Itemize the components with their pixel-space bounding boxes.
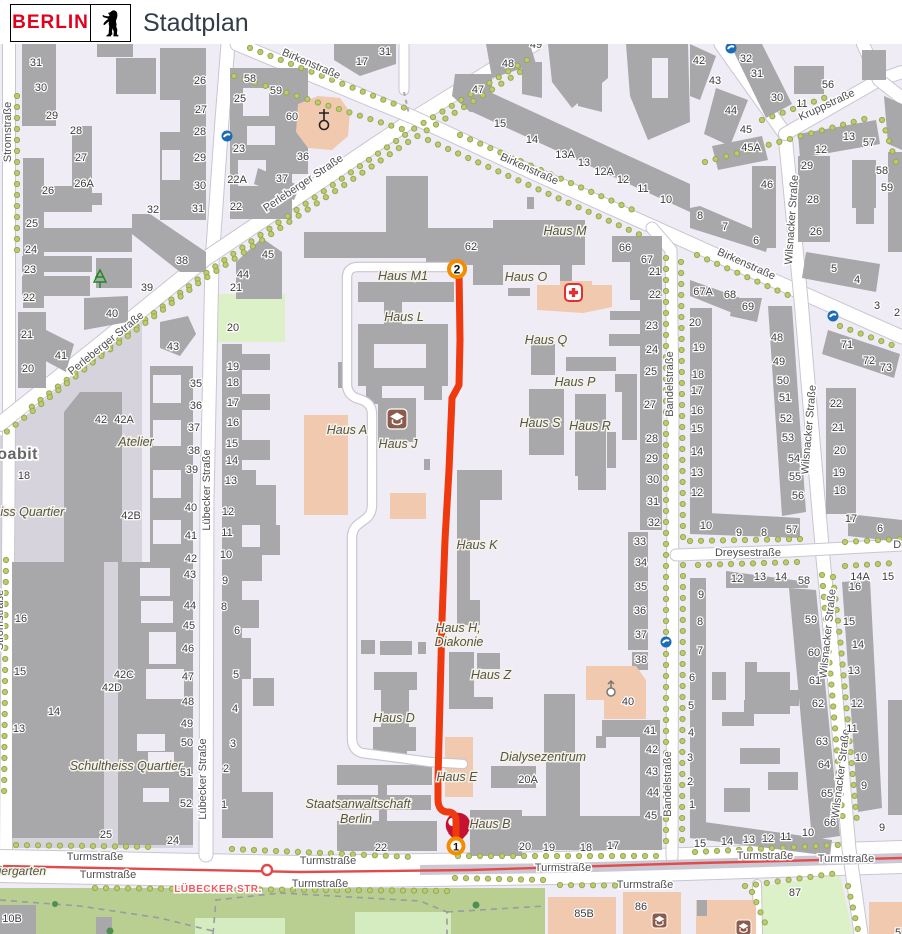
svg-text:60: 60 (286, 111, 298, 123)
svg-text:3: 3 (230, 738, 236, 750)
svg-text:5: 5 (831, 263, 837, 275)
svg-text:31: 31 (30, 57, 42, 69)
svg-text:51: 51 (180, 767, 192, 779)
svg-text:13: 13 (848, 665, 860, 677)
svg-text:Haus R: Haus R (569, 419, 611, 433)
svg-text:Turmstraße: Turmstraße (300, 855, 356, 867)
svg-text:25: 25 (645, 366, 657, 378)
svg-text:17: 17 (356, 56, 368, 68)
svg-text:13: 13 (754, 571, 766, 583)
svg-text:50: 50 (777, 375, 789, 387)
svg-text:Haus Q: Haus Q (525, 333, 568, 347)
svg-text:57: 57 (863, 137, 875, 149)
svg-text:Haus M: Haus M (543, 224, 587, 238)
svg-text:Turmstraße: Turmstraße (292, 878, 348, 890)
svg-text:29: 29 (801, 160, 813, 172)
svg-text:40: 40 (622, 696, 634, 708)
svg-text:Haus J: Haus J (379, 437, 419, 451)
svg-text:15: 15 (694, 838, 706, 850)
svg-text:Turmstraße: Turmstraße (67, 851, 123, 863)
svg-text:Schultheiss Quartier: Schultheiss Quartier (70, 759, 183, 773)
svg-text:14: 14 (691, 446, 703, 458)
svg-text:28: 28 (807, 194, 819, 206)
svg-text:Turmstraße: Turmstraße (818, 853, 874, 865)
svg-text:Bandelstraße: Bandelstraße (664, 351, 676, 416)
svg-text:4: 4 (688, 727, 694, 739)
svg-text:12: 12 (762, 833, 774, 845)
svg-text:68: 68 (724, 289, 736, 301)
svg-text:Stromstraße: Stromstraße (0, 590, 6, 651)
svg-text:21: 21 (832, 422, 844, 434)
svg-text:44: 44 (725, 105, 737, 117)
svg-text:58: 58 (798, 575, 810, 587)
svg-text:12: 12 (731, 573, 743, 585)
svg-text:24: 24 (646, 344, 658, 356)
svg-text:Haus O: Haus O (505, 270, 548, 284)
svg-text:13: 13 (225, 475, 237, 487)
svg-text:45: 45 (645, 810, 657, 822)
svg-text:Haus D: Haus D (373, 711, 415, 725)
svg-text:22: 22 (830, 398, 842, 410)
svg-text:15: 15 (226, 438, 238, 450)
svg-text:42: 42 (693, 55, 705, 67)
svg-text:39: 39 (186, 464, 198, 476)
svg-text:22: 22 (375, 842, 387, 854)
svg-text:8: 8 (697, 210, 703, 222)
svg-text:32: 32 (147, 204, 159, 216)
svg-text:27: 27 (644, 399, 656, 411)
svg-text:13: 13 (843, 131, 855, 143)
svg-text:71: 71 (841, 339, 853, 351)
svg-text:38: 38 (176, 255, 188, 267)
svg-text:87: 87 (789, 887, 801, 899)
svg-text:24: 24 (167, 835, 179, 847)
svg-text:5: 5 (688, 700, 694, 712)
svg-text:1: 1 (453, 842, 459, 854)
svg-text:45A: 45A (741, 142, 761, 154)
svg-text:59: 59 (270, 85, 282, 97)
svg-text:48: 48 (502, 58, 514, 70)
svg-text:55: 55 (789, 471, 801, 483)
svg-text:Haus E: Haus E (437, 770, 479, 784)
svg-text:10: 10 (660, 194, 672, 206)
svg-text:40: 40 (185, 502, 197, 514)
svg-text:39: 39 (141, 282, 153, 294)
svg-text:12: 12 (851, 698, 863, 710)
svg-text:57: 57 (786, 524, 798, 536)
svg-text:43: 43 (709, 75, 721, 87)
svg-text:24: 24 (25, 244, 37, 256)
svg-text:Haus B: Haus B (470, 817, 511, 831)
svg-text:19: 19 (693, 342, 705, 354)
svg-text:17: 17 (227, 397, 239, 409)
svg-text:63: 63 (816, 736, 828, 748)
svg-text:Haus P: Haus P (555, 375, 597, 389)
svg-text:45: 45 (740, 124, 752, 136)
svg-text:10: 10 (802, 827, 814, 839)
svg-text:12: 12 (222, 506, 234, 518)
svg-text:12: 12 (617, 174, 629, 186)
svg-text:26: 26 (194, 75, 206, 87)
svg-text:37: 37 (188, 422, 200, 434)
svg-text:12: 12 (691, 487, 703, 499)
svg-text:6: 6 (753, 235, 759, 247)
svg-text:35: 35 (190, 378, 202, 390)
svg-text:Turmstraße: Turmstraße (80, 869, 136, 881)
svg-text:Moabit: Moabit (0, 446, 38, 463)
svg-text:4: 4 (232, 703, 238, 715)
svg-text:20: 20 (22, 363, 34, 375)
svg-text:4: 4 (854, 274, 860, 286)
svg-text:1: 1 (689, 799, 695, 811)
svg-text:67: 67 (641, 254, 653, 266)
svg-text:16: 16 (227, 417, 239, 429)
svg-text:13: 13 (578, 157, 590, 169)
svg-text:56: 56 (792, 490, 804, 502)
svg-text:36: 36 (297, 151, 309, 163)
svg-text:26: 26 (810, 226, 822, 238)
svg-text:13: 13 (13, 723, 25, 735)
svg-text:14: 14 (775, 571, 787, 583)
svg-text:21: 21 (230, 282, 242, 294)
svg-text:66: 66 (619, 242, 631, 254)
svg-text:10: 10 (700, 520, 712, 532)
svg-text:Haus K: Haus K (457, 538, 499, 552)
svg-text:11: 11 (780, 831, 791, 843)
svg-text:25: 25 (26, 218, 38, 230)
svg-text:Haus H,: Haus H, (435, 621, 480, 635)
svg-text:48: 48 (771, 332, 783, 344)
svg-text:Stromstraße: Stromstraße (2, 102, 14, 163)
svg-text:47: 47 (472, 84, 484, 96)
svg-text:22: 22 (23, 292, 35, 304)
svg-text:10: 10 (855, 752, 867, 764)
svg-text:41: 41 (185, 530, 197, 542)
svg-text:28: 28 (646, 433, 658, 445)
svg-text:17: 17 (607, 840, 619, 852)
svg-text:13A: 13A (555, 149, 575, 161)
svg-text:Haus L: Haus L (384, 310, 424, 324)
svg-text:38: 38 (188, 445, 200, 457)
svg-text:46: 46 (182, 643, 194, 655)
svg-text:56: 56 (822, 79, 834, 91)
svg-text:Turmstraße: Turmstraße (737, 850, 793, 862)
svg-text:20A: 20A (518, 774, 538, 786)
svg-text:65: 65 (821, 788, 833, 800)
svg-text:Lübecker Straße: Lübecker Straße (201, 449, 213, 530)
svg-text:34: 34 (635, 557, 647, 569)
svg-text:67A: 67A (693, 286, 713, 298)
svg-text:9: 9 (698, 589, 704, 601)
svg-text:50: 50 (181, 737, 193, 749)
svg-text:73: 73 (880, 362, 892, 374)
svg-text:11: 11 (637, 183, 648, 195)
svg-text:42: 42 (185, 553, 197, 565)
svg-text:LÜBECKER STR.: LÜBECKER STR. (174, 882, 262, 895)
svg-text:31: 31 (192, 203, 204, 215)
svg-text:18: 18 (580, 842, 592, 854)
svg-text:15: 15 (843, 616, 855, 628)
svg-text:29: 29 (194, 152, 206, 164)
svg-text:30: 30 (771, 92, 783, 104)
svg-text:22A: 22A (227, 174, 247, 186)
svg-text:49: 49 (773, 356, 785, 368)
svg-text:20: 20 (519, 841, 531, 853)
svg-text:11: 11 (796, 98, 807, 110)
svg-text:61: 61 (809, 675, 821, 687)
svg-text:3: 3 (874, 300, 880, 312)
svg-text:12: 12 (815, 144, 827, 156)
svg-text:42A: 42A (114, 414, 134, 426)
svg-text:Haus A: Haus A (327, 423, 368, 437)
svg-text:48: 48 (182, 696, 194, 708)
svg-text:49: 49 (181, 718, 193, 730)
svg-text:66: 66 (824, 817, 836, 829)
svg-text:36: 36 (634, 605, 646, 617)
svg-text:9: 9 (861, 780, 867, 792)
svg-text:29: 29 (646, 453, 658, 465)
svg-text:20: 20 (227, 322, 239, 334)
svg-text:44: 44 (647, 787, 659, 799)
svg-text:23: 23 (24, 264, 36, 276)
svg-text:2: 2 (223, 763, 229, 775)
svg-text:26A: 26A (74, 178, 94, 190)
svg-text:43: 43 (184, 569, 196, 581)
svg-text:14: 14 (526, 134, 538, 146)
svg-text:Berlin: Berlin (340, 812, 372, 826)
svg-text:43: 43 (646, 766, 658, 778)
svg-text:15: 15 (882, 571, 894, 583)
svg-text:Haus M1: Haus M1 (378, 269, 428, 283)
svg-text:52: 52 (780, 413, 792, 425)
svg-text:42D: 42D (102, 682, 122, 694)
svg-text:7: 7 (722, 221, 728, 233)
svg-text:85B: 85B (574, 908, 594, 920)
svg-text:Dialysezentrum: Dialysezentrum (500, 750, 586, 764)
svg-text:23: 23 (233, 143, 245, 155)
svg-text:1: 1 (221, 799, 227, 811)
svg-text:Atelier: Atelier (117, 435, 154, 449)
svg-text:47: 47 (182, 671, 194, 683)
svg-text:2: 2 (687, 776, 693, 788)
svg-text:41: 41 (55, 350, 67, 362)
svg-text:Haus Z: Haus Z (471, 668, 512, 682)
svg-text:46: 46 (761, 179, 773, 191)
svg-text:41: 41 (644, 725, 656, 737)
svg-text:28: 28 (70, 125, 82, 137)
svg-text:45: 45 (183, 620, 195, 632)
svg-text:45: 45 (262, 249, 274, 261)
svg-text:6: 6 (689, 672, 695, 684)
svg-text:Diakonie: Diakonie (435, 635, 484, 649)
svg-text:10: 10 (220, 549, 232, 561)
svg-text:26: 26 (42, 185, 54, 197)
svg-text:16: 16 (691, 405, 703, 417)
svg-text:38: 38 (635, 654, 647, 666)
svg-text:Haus S: Haus S (520, 416, 562, 430)
svg-text:Dr: Dr (893, 539, 902, 551)
svg-text:32: 32 (740, 53, 752, 65)
svg-text:59: 59 (805, 614, 817, 626)
svg-text:19: 19 (227, 361, 239, 373)
svg-text:25: 25 (234, 93, 246, 105)
svg-text:64: 64 (818, 759, 830, 771)
svg-text:29: 29 (46, 110, 58, 122)
svg-text:11: 11 (846, 723, 857, 735)
svg-text:27: 27 (75, 152, 87, 164)
svg-text:11: 11 (221, 527, 232, 539)
svg-text:31: 31 (379, 46, 391, 58)
svg-text:35: 35 (635, 581, 647, 593)
svg-text:58: 58 (876, 165, 888, 177)
svg-text:12A: 12A (594, 166, 614, 178)
svg-text:18: 18 (18, 470, 30, 482)
svg-text:5: 5 (895, 927, 901, 934)
svg-text:22: 22 (649, 289, 661, 301)
svg-text:Turmstraße: Turmstraße (535, 862, 591, 874)
svg-text:42B: 42B (121, 510, 141, 522)
svg-text:13: 13 (691, 467, 703, 479)
svg-text:20: 20 (689, 317, 701, 329)
svg-text:15: 15 (494, 118, 506, 130)
svg-text:30: 30 (647, 474, 659, 486)
svg-text:14: 14 (852, 639, 864, 651)
svg-text:42C: 42C (114, 669, 134, 681)
svg-text:21: 21 (21, 329, 33, 341)
svg-text:33: 33 (634, 536, 646, 548)
svg-text:10B: 10B (2, 913, 22, 925)
svg-text:19: 19 (833, 467, 845, 479)
svg-text:54: 54 (788, 453, 800, 465)
svg-text:14: 14 (226, 455, 238, 467)
svg-text:37: 37 (276, 173, 288, 185)
svg-text:9: 9 (222, 575, 228, 587)
svg-text:58: 58 (244, 73, 256, 85)
svg-text:30: 30 (194, 180, 206, 192)
svg-text:62: 62 (812, 698, 824, 710)
svg-text:3: 3 (687, 752, 693, 764)
svg-text:18: 18 (692, 369, 704, 381)
svg-text:14: 14 (721, 836, 733, 848)
svg-text:16: 16 (15, 613, 27, 625)
svg-text:7: 7 (697, 645, 703, 657)
svg-text:44: 44 (184, 600, 196, 612)
svg-text:19: 19 (543, 842, 555, 854)
svg-text:59: 59 (881, 182, 893, 194)
svg-text:8: 8 (761, 527, 767, 539)
svg-text:44: 44 (237, 269, 249, 281)
svg-text:Lübecker Straße: Lübecker Straße (197, 738, 209, 819)
svg-text:Turmstraße: Turmstraße (617, 879, 673, 891)
svg-text:22: 22 (230, 201, 242, 213)
svg-text:36: 36 (190, 400, 202, 412)
svg-text:42: 42 (646, 744, 658, 756)
svg-text:17: 17 (691, 385, 703, 397)
svg-text:Kleiner Tiergarten: Kleiner Tiergarten (0, 864, 46, 878)
svg-text:43: 43 (167, 341, 179, 353)
svg-text:72: 72 (863, 355, 875, 367)
svg-text:6: 6 (234, 625, 240, 637)
svg-text:25: 25 (100, 829, 112, 841)
svg-text:49: 49 (530, 44, 542, 51)
svg-text:Schultheiss Quartier: Schultheiss Quartier (0, 505, 65, 519)
svg-text:30: 30 (35, 82, 47, 94)
svg-text:53: 53 (782, 432, 794, 444)
svg-text:37: 37 (635, 629, 647, 641)
svg-text:15: 15 (14, 666, 26, 678)
svg-text:69: 69 (742, 301, 754, 313)
svg-text:14: 14 (48, 706, 60, 718)
svg-text:2: 2 (454, 263, 461, 277)
svg-text:40: 40 (106, 308, 118, 320)
svg-text:17: 17 (845, 513, 857, 525)
svg-text:9: 9 (736, 527, 742, 539)
svg-text:Bandelstraße: Bandelstraße (662, 751, 674, 816)
svg-text:5: 5 (233, 669, 239, 681)
svg-text:16: 16 (849, 581, 861, 593)
svg-text:18: 18 (834, 485, 846, 497)
svg-text:8: 8 (221, 601, 227, 613)
svg-text:31: 31 (647, 496, 659, 508)
svg-text:15: 15 (691, 423, 703, 435)
svg-text:60: 60 (808, 647, 820, 659)
svg-text:2: 2 (894, 307, 900, 319)
svg-text:6: 6 (877, 523, 883, 535)
svg-text:9: 9 (879, 822, 885, 834)
svg-text:86: 86 (635, 901, 647, 913)
svg-text:42: 42 (95, 414, 107, 426)
svg-text:13: 13 (743, 834, 755, 846)
svg-text:51: 51 (779, 392, 791, 404)
svg-text:18: 18 (227, 377, 239, 389)
svg-text:8: 8 (697, 616, 703, 628)
svg-text:27: 27 (195, 104, 207, 116)
svg-text:52: 52 (180, 798, 192, 810)
svg-text:Staatsanwaltschaft: Staatsanwaltschaft (306, 797, 411, 811)
svg-text:32: 32 (648, 517, 660, 529)
svg-text:31: 31 (751, 68, 763, 80)
svg-text:Dreysestraße: Dreysestraße (715, 547, 781, 559)
svg-text:21: 21 (649, 266, 661, 278)
svg-text:28: 28 (194, 126, 206, 138)
svg-text:20: 20 (834, 445, 846, 457)
svg-text:23: 23 (646, 320, 658, 332)
svg-text:62: 62 (465, 241, 477, 253)
